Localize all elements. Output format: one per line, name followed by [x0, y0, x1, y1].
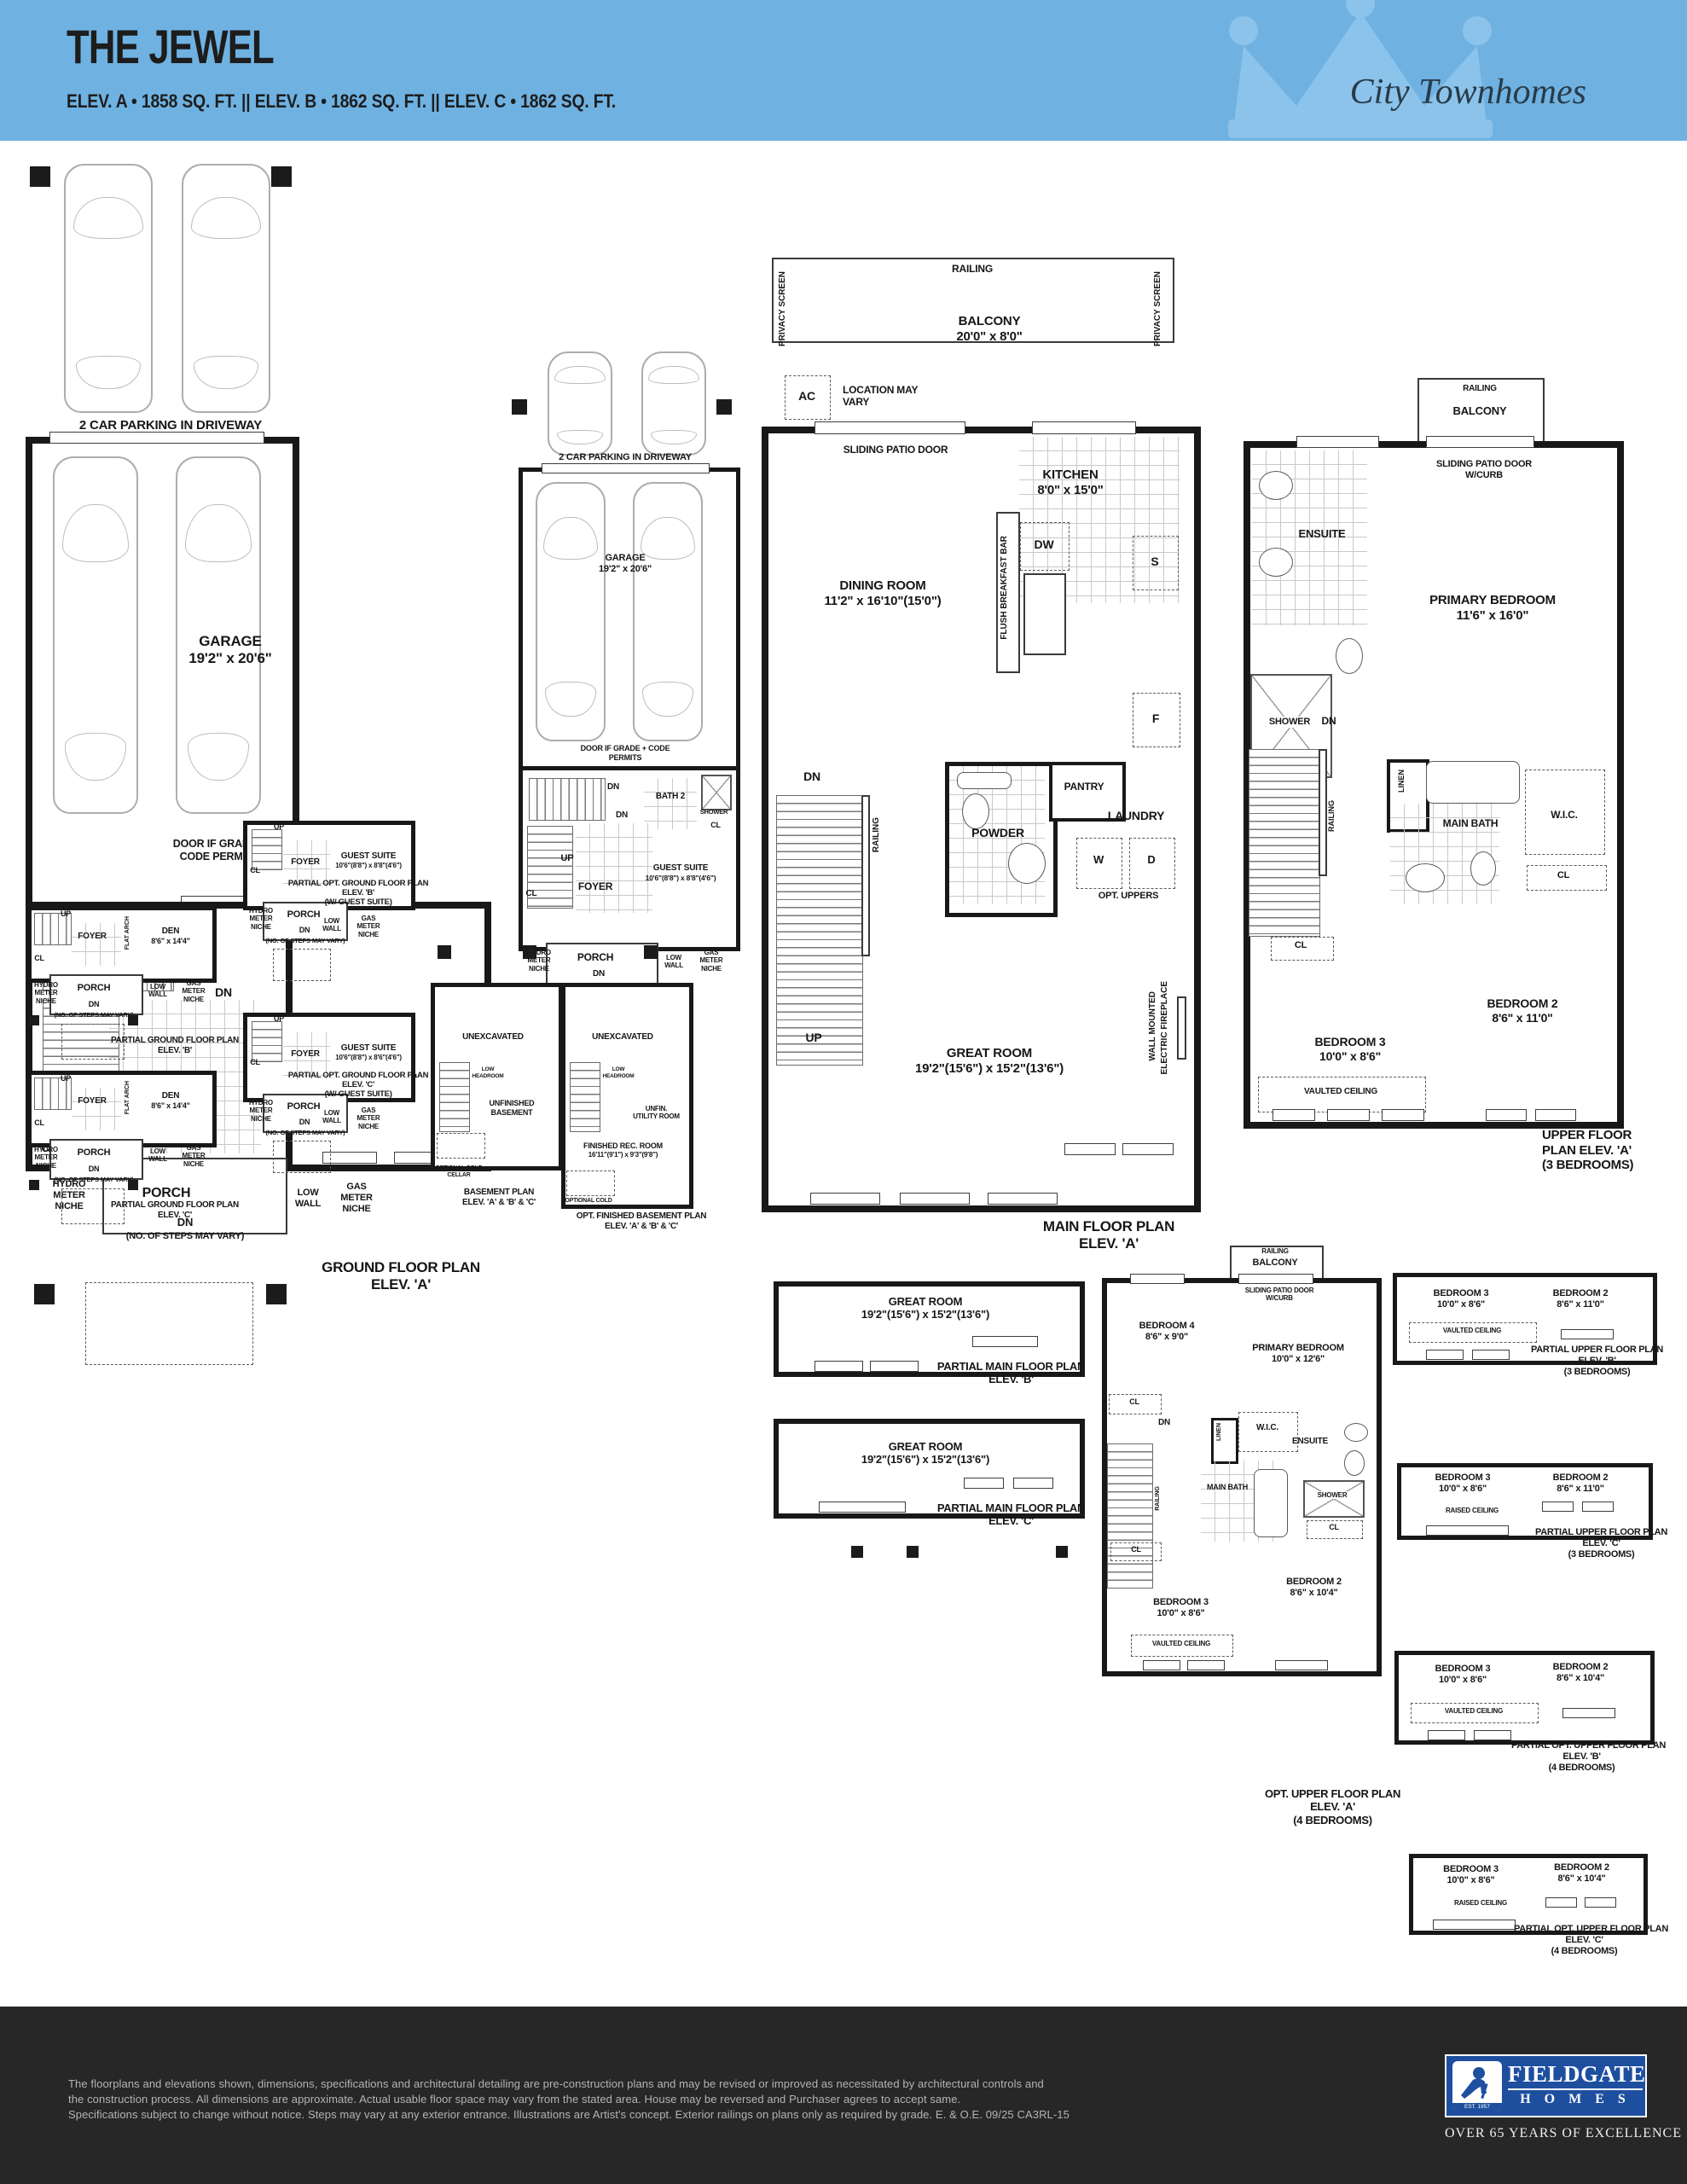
window: [1187, 1660, 1225, 1670]
wic-label: W.I.C.: [1244, 1423, 1291, 1433]
bedroom2-label: BEDROOM 28'6" x 11'0": [1454, 996, 1591, 1025]
railing-label: RAILING: [921, 263, 1023, 275]
gas-meter-label: GAS METER NICHE: [175, 1144, 212, 1168]
closet-label: CL: [1121, 1545, 1151, 1554]
entry-steps: [273, 1141, 331, 1173]
window: [1275, 1660, 1328, 1670]
great-room-label: GREAT ROOM19'2"(15'6") x 15'2"(13'6"): [887, 1046, 1092, 1076]
powder-sink: [957, 772, 1012, 789]
pu-c3-caption: PARTIAL UPPER FLOOR PLANELEV. 'C'(3 BEDR…: [1531, 1527, 1672, 1560]
sliding-door: [815, 421, 965, 434]
window: [810, 1193, 880, 1205]
plan-marker: [271, 166, 292, 187]
fireplace-label-1: WALL MOUNTED: [1148, 991, 1157, 1060]
plan-marker: [34, 1284, 55, 1304]
page-title: THE JEWEL: [67, 19, 274, 74]
den-label: DEN8'6" x 14'4": [138, 926, 203, 945]
elevation-specs: ELEV. A • 1858 SQ. FT. || ELEV. B • 1862…: [67, 90, 616, 113]
parking-label: 2 CAR PARKING IN DRIVEWAY: [536, 452, 715, 463]
window: [1561, 1329, 1614, 1339]
brand-city-townhomes: City Townhomes: [1350, 72, 1586, 113]
dn-label: DN: [793, 770, 831, 784]
pu-b4-caption: PARTIAL OPT. UPPER FLOOR PLANELEV. 'B'(4…: [1511, 1740, 1652, 1774]
powder-basin: [1008, 843, 1046, 884]
car-top-view: [548, 351, 612, 456]
gas-meter-label: GAS METER NICHE: [693, 949, 730, 973]
ensuite-label: ENSUITE: [1278, 1437, 1342, 1447]
plan-marker: [523, 945, 536, 959]
garage-door: [542, 463, 710, 473]
dn-label: DN: [292, 926, 317, 935]
bathtub: [1426, 761, 1520, 804]
closet-label: CL: [245, 1058, 265, 1067]
privacy-screen-label: PRIVACY SCREEN: [778, 271, 787, 346]
upper-a-caption: UPPER FLOORPLAN ELEV. 'A'(3 BEDROOMS): [1542, 1128, 1678, 1173]
railing-label: RAILING: [872, 817, 881, 852]
porch-label: PORCH: [68, 983, 119, 994]
pog-c-caption: PARTIAL OPT. GROUND FLOOR PLANELEV. 'C'(…: [281, 1071, 435, 1100]
plan-marker: [266, 1284, 287, 1304]
low-wall-label: LOW WALL: [317, 1109, 346, 1125]
foyer-tiles: [72, 1088, 121, 1130]
stairs: [439, 1062, 470, 1132]
entry-steps: [273, 949, 331, 981]
pu-c4-caption: PARTIAL OPT. UPPER FLOOR PLANELEV. 'C'(4…: [1514, 1924, 1655, 1957]
guest-suite-label: GUEST SUITE10'6"(8'8") x 8'8"(4'6"): [633, 863, 728, 882]
powder-label: POWDER: [955, 826, 1041, 840]
closet-label: CL: [29, 954, 49, 963]
washer-label: W: [1078, 853, 1119, 866]
disclaimer-line-1: The floorplans and elevations shown, dim…: [68, 2077, 1044, 2090]
unexcavated-label: UNEXCAVATED: [571, 1032, 674, 1043]
primary-bedroom-label: PRIMARY BEDROOM11'6" x 16'0": [1399, 593, 1586, 623]
up-label: UP: [53, 1074, 78, 1083]
dn-label: DN: [81, 1000, 107, 1009]
partial-main-c-caption: PARTIAL MAIN FLOOR PLANELEV. 'C': [936, 1501, 1086, 1528]
ground-a-caption: GROUND FLOOR PLANELEV. 'A': [307, 1259, 495, 1293]
window: [1272, 1109, 1315, 1121]
ensuite-label: ENSUITE: [1284, 527, 1360, 540]
dn-label: DN: [1312, 715, 1346, 727]
porch-label: PORCH: [570, 951, 621, 963]
main-bath-label: MAIN BATH: [1431, 817, 1510, 829]
stair-railing: [1319, 749, 1327, 876]
low-wall-label: LOW WALL: [317, 917, 346, 933]
plan-marker: [851, 1546, 863, 1558]
bedroom3-label: BEDROOM 310'0" x 8'6": [1282, 1035, 1418, 1063]
window: [1130, 1274, 1185, 1284]
bedroom3-label: BEDROOM 310'0" x 8'6": [1417, 1864, 1524, 1886]
plan-marker: [128, 1015, 138, 1025]
closet-label: CL: [1119, 1397, 1150, 1407]
plan-marker: [512, 399, 527, 415]
window: [1474, 1730, 1511, 1740]
foyer-tiles: [72, 923, 121, 966]
closet-label: CL: [520, 889, 542, 899]
vaulted-ceiling-label: VAULTED CEILING: [1272, 1087, 1409, 1097]
closet-label: CL: [1542, 870, 1585, 881]
bedroom2-label: BEDROOM 28'6" x 11'0": [1525, 1472, 1636, 1495]
dn-label: DN: [607, 810, 636, 821]
window: [1486, 1109, 1527, 1121]
low-wall-label: LOW WALL: [658, 954, 689, 970]
car-top-view: [182, 164, 270, 413]
plan-marker: [716, 399, 732, 415]
stairs: [529, 778, 606, 821]
balcony-label: BALCONY20'0" x 8'0": [930, 314, 1049, 344]
foyer-label: FOYER: [570, 880, 621, 892]
car-top-view: [64, 164, 153, 413]
garage-label: GARAGE19'2" x 20'6": [166, 633, 294, 667]
fridge-label: F: [1134, 712, 1177, 726]
toilet: [1336, 638, 1363, 674]
closet-label: CL: [704, 821, 727, 830]
stairs: [776, 795, 863, 1066]
garage-door: [49, 432, 264, 444]
foyer-label: FOYER: [67, 932, 118, 942]
ceiling-label: VAULTED CEILING: [1417, 1327, 1527, 1334]
car-top-view: [633, 482, 703, 741]
linen-label: LINEN: [1397, 770, 1406, 793]
guest-suite-label: GUEST SUITE10'6"(8'8") x 8'8"(4'6"): [326, 851, 411, 869]
cold-cellar-box: [566, 1170, 615, 1196]
low-wall-label: LOW WALL: [143, 983, 172, 999]
shower-label: SHOWER: [694, 809, 733, 816]
window: [1542, 1501, 1574, 1512]
den-label: DEN8'6" x 14'4": [138, 1091, 203, 1110]
pantry-label: PANTRY: [1052, 781, 1116, 793]
shower-box: [701, 775, 732, 810]
bedroom2-label: BEDROOM 28'6" x 11'0": [1525, 1288, 1636, 1310]
stairs: [1249, 749, 1320, 937]
hydro-meter-label: HYDRO METER NICHE: [27, 1146, 65, 1170]
bedroom3-label: BEDROOM 310'0" x 8'6": [1136, 1597, 1226, 1619]
bedroom2-label: BEDROOM 28'6" x 10'4": [1528, 1862, 1635, 1885]
window: [1562, 1708, 1615, 1718]
main-bath-label: MAIN BATH: [1201, 1483, 1254, 1492]
dryer-label: D: [1131, 853, 1172, 866]
railing-label: RAILING: [1155, 1486, 1161, 1511]
car-top-view: [536, 482, 606, 741]
fieldgate-worker-icon: EST. 1957: [1452, 2061, 1502, 2111]
window: [972, 1336, 1038, 1347]
dn-label: DN: [1150, 1418, 1179, 1428]
dw-label: DW: [1022, 537, 1066, 552]
ceiling-label: VAULTED CEILING: [1419, 1707, 1528, 1715]
dn-label: DN: [292, 1118, 317, 1127]
gas-meter-label: GAS METER NICHE: [334, 1182, 379, 1215]
hydro-meter-label: HYDRO METER NICHE: [242, 1099, 280, 1123]
railing-label: RAILING: [1443, 384, 1516, 394]
wic-label: W.I.C.: [1528, 809, 1600, 821]
up-label: UP: [266, 1014, 292, 1024]
garage-label: GARAGE19'2" x 20'6": [574, 553, 676, 575]
linen-label: LINEN: [1216, 1423, 1222, 1441]
window: [1428, 1730, 1465, 1740]
up-label: UP: [795, 1031, 832, 1045]
utility-room-label: UNFIN. UTILITY ROOM: [633, 1105, 680, 1121]
sink: [1259, 548, 1293, 577]
bedroom2-label: BEDROOM 28'6" x 10'4": [1525, 1662, 1636, 1684]
stair-railing: [861, 795, 870, 956]
stairs: [252, 1021, 282, 1062]
foyer-label: FOYER: [67, 1096, 118, 1107]
pog-b-caption: PARTIAL OPT. GROUND FLOOR PLANELEV. 'B'(…: [281, 879, 435, 908]
disclaimer-line-2: the construction process. All dimensions…: [68, 2093, 960, 2106]
closet-label: CL: [245, 866, 265, 875]
sliding-door: [1426, 436, 1534, 448]
window: [1472, 1350, 1510, 1360]
foyer-label: FOYER: [280, 1049, 331, 1060]
window: [819, 1501, 906, 1513]
window: [1143, 1660, 1180, 1670]
stairs: [570, 1062, 600, 1132]
vaulted-ceiling-label: VAULTED CEILING: [1138, 1640, 1225, 1647]
unfinished-basement-label: UNFINISHED BASEMENT: [478, 1099, 546, 1117]
bedroom3-label: BEDROOM 310'0" x 8'6": [1406, 1288, 1516, 1310]
plan-marker: [128, 1180, 138, 1190]
low-wall-label: LOW WALL: [143, 1147, 172, 1164]
gas-meter-label: GAS METER NICHE: [175, 979, 212, 1003]
up-label: UP: [553, 853, 582, 864]
closet-label: CL: [29, 1118, 49, 1128]
basement-caption: BASEMENT PLANELEV. 'A' & 'B' & 'C': [443, 1188, 554, 1208]
header-banner: THE JEWEL ELEV. A • 1858 SQ. FT. || ELEV…: [0, 0, 1687, 141]
sliding-door-label: SLIDING PATIO DOORW/CURB: [1237, 1287, 1322, 1303]
logo-name: FIELDGATE: [1508, 2061, 1643, 2090]
partial-main-b-caption: PARTIAL MAIN FLOOR PLANELEV. 'B': [936, 1360, 1086, 1386]
floorplan-sheet: THE JEWEL ELEV. A • 1858 SQ. FT. || ELEV…: [0, 0, 1687, 2184]
window: [815, 1361, 863, 1372]
cold-cellar-box: [437, 1133, 485, 1159]
flat-arch-label: FLAT ARCH: [125, 916, 130, 950]
window: [1013, 1478, 1053, 1489]
hydro-meter-label: HYDRO METER NICHE: [27, 981, 65, 1005]
ac-location-note: LOCATION MAY VARY: [843, 384, 919, 408]
window: [870, 1361, 919, 1372]
logo-est-label: EST. 1957: [1452, 2103, 1502, 2111]
window: [1535, 1109, 1576, 1121]
fireplace-label-2: ELECTRIC FIREPLACE: [1160, 981, 1169, 1074]
window: [1032, 421, 1136, 434]
logo-tagline: OVER 65 YEARS OF EXCELLENCE: [1445, 2126, 1647, 2141]
plan-marker: [29, 1015, 39, 1025]
bedroom2-label: BEDROOM 28'6" x 10'4": [1269, 1577, 1359, 1599]
plan-marker: [907, 1546, 919, 1558]
dn-label: DN: [81, 1165, 107, 1174]
kitchen-counter: [1023, 573, 1066, 655]
railing-label: RAILING: [1327, 800, 1336, 832]
plan-marker: [438, 945, 451, 959]
up-label: UP: [53, 909, 78, 919]
opt-uppers-label: OPT. UPPERS: [1081, 891, 1175, 902]
main-a-caption: MAIN FLOOR PLANELEV. 'A': [1028, 1218, 1190, 1252]
gas-meter-label: GAS METER NICHE: [350, 1107, 387, 1130]
sink: [1259, 471, 1293, 500]
pg-c-caption: PARTIAL GROUND FLOOR PLANELEV. 'C': [102, 1200, 247, 1221]
toilet: [1470, 851, 1496, 886]
car-top-view: [641, 351, 706, 456]
window: [900, 1193, 970, 1205]
plan-marker: [1056, 1546, 1068, 1558]
window: [1064, 1143, 1116, 1155]
hydro-meter-label: HYDRO METER NICHE: [242, 907, 280, 931]
opt-upper-a4-caption: OPT. UPPER FLOOR PLANELEV. 'A'(4 BEDROOM…: [1258, 1787, 1407, 1827]
window: [988, 1193, 1058, 1205]
balcony-label: BALCONY: [1440, 404, 1520, 417]
dining-room-label: DINING ROOM11'2" x 16'10"(15'0"): [815, 578, 951, 608]
bedroom3-label: BEDROOM 310'0" x 8'6": [1407, 1472, 1518, 1495]
fireplace: [1177, 996, 1186, 1060]
linen-walls: [1211, 1418, 1238, 1464]
window: [1426, 1525, 1509, 1536]
gas-meter-label: GAS METER NICHE: [350, 915, 387, 938]
unexcavated-label: UNEXCAVATED: [442, 1032, 544, 1043]
disclaimer-line-3: Specifications subject to change without…: [68, 2108, 1070, 2121]
window: [964, 1478, 1004, 1489]
sliding-door: [1238, 1274, 1313, 1284]
window: [1327, 1109, 1370, 1121]
bedroom3-label: BEDROOM 310'0" x 8'6": [1407, 1664, 1518, 1686]
foyer-label: FOYER: [280, 857, 331, 868]
flat-arch-label: FLAT ARCH: [125, 1081, 130, 1114]
railing-label: RAILING: [1238, 1247, 1312, 1255]
stairs: [252, 829, 282, 870]
crown-watermark-icon: [1211, 0, 1510, 138]
ceiling-label: RAISED CEILING: [1417, 1507, 1527, 1514]
toilet: [962, 793, 989, 829]
bath-tiles: [644, 778, 697, 829]
steps-note: (NO. OF STEPS MAY VARY): [254, 938, 357, 945]
dn-label: DN: [584, 969, 613, 979]
up-label: UP: [266, 822, 292, 832]
window: [1545, 1897, 1577, 1908]
bedroom4-label: BEDROOM 48'6" x 9'0": [1124, 1321, 1209, 1343]
door-grade-note: DOOR IF GRADE + CODE PERMITS: [578, 744, 672, 762]
fieldgate-logo: EST. 1957 FIELDGATE H O M E S: [1445, 2054, 1647, 2117]
pg-b-caption: PARTIAL GROUND FLOOR PLANELEV. 'B': [102, 1036, 247, 1056]
car-top-view: [53, 456, 138, 814]
low-headroom-label: LOW HEADROOM: [471, 1066, 505, 1079]
low-wall-label: LOW WALL: [290, 1188, 326, 1210]
plan-marker: [30, 166, 50, 187]
opt-basement-caption: OPT. FINISHED BASEMENT PLANELEV. 'A' & '…: [573, 1211, 710, 1232]
ceiling-label: RAISED CEILING: [1426, 1899, 1535, 1907]
logo-homes: H O M E S: [1508, 2092, 1643, 2107]
flush-breakfast-bar-label: FLUSH BREAKFAST BAR: [1000, 536, 1009, 640]
sliding-door-label: SLIDING PATIO DOOR: [832, 444, 959, 456]
plan-marker: [29, 1180, 39, 1190]
bath2-label: BATH 2: [646, 792, 694, 802]
privacy-screen-label: PRIVACY SCREEN: [1153, 271, 1162, 346]
footer-bar: The floorplans and elevations shown, dim…: [0, 2007, 1687, 2184]
primary-bedroom-label: PRIMARY BEDROOM10'0" x 12'6": [1238, 1343, 1358, 1365]
window: [1382, 1109, 1424, 1121]
shower-label: SHOWER: [1307, 1491, 1358, 1499]
sink: [1406, 863, 1445, 892]
low-headroom-label: LOW HEADROOM: [601, 1066, 635, 1079]
window: [1585, 1897, 1616, 1908]
sliding-door-label: SLIDING PATIO DOORW/CURB: [1416, 459, 1552, 481]
closet-label: CL: [1279, 940, 1322, 951]
toilet: [1344, 1450, 1365, 1476]
window: [1582, 1501, 1614, 1512]
cold-cellar-label: OPTIONAL COLD CELLAR: [563, 1198, 614, 1212]
window: [1433, 1920, 1516, 1930]
laundry-label: LAUNDRY: [1093, 809, 1179, 823]
window: [1296, 436, 1379, 448]
great-room-label: GREAT ROOM19'2"(15'6") x 15'2"(13'6"): [857, 1440, 994, 1467]
window: [1122, 1143, 1174, 1155]
cold-cellar-label: OPTIONAL COLD CELLAR: [433, 1165, 484, 1180]
pu-b3-caption: PARTIAL UPPER FLOOR PLANELEV. 'B'(3 BEDR…: [1527, 1345, 1667, 1378]
guest-suite-label: GUEST SUITE10'6"(8'8") x 8'6"(4'6"): [326, 1043, 411, 1061]
balcony-label: BALCONY: [1238, 1258, 1312, 1269]
sink: [1344, 1423, 1368, 1442]
rec-room-label: FINISHED REC. ROOM16'11"(9'1") x 9'3"(9'…: [570, 1141, 676, 1159]
kitchen-label: KITCHEN8'0" x 15'0": [1011, 468, 1130, 497]
closet-label: CL: [1320, 1523, 1348, 1532]
bathtub: [1254, 1469, 1288, 1537]
entry-steps: [85, 1282, 253, 1365]
porch-label: PORCH: [68, 1147, 119, 1159]
great-room-label: GREAT ROOM19'2"(15'6") x 15'2"(13'6"): [857, 1295, 994, 1321]
sink-label: S: [1134, 555, 1175, 569]
dn-label: DN: [599, 782, 628, 793]
ac-label: AC: [786, 389, 827, 404]
steps-note: (NO. OF STEPS MAY VARY): [96, 1231, 275, 1242]
plan-marker: [644, 945, 658, 959]
stairs: [1107, 1443, 1153, 1589]
steps-note: (NO. OF STEPS MAY VARY): [254, 1130, 357, 1137]
window: [1426, 1350, 1464, 1360]
